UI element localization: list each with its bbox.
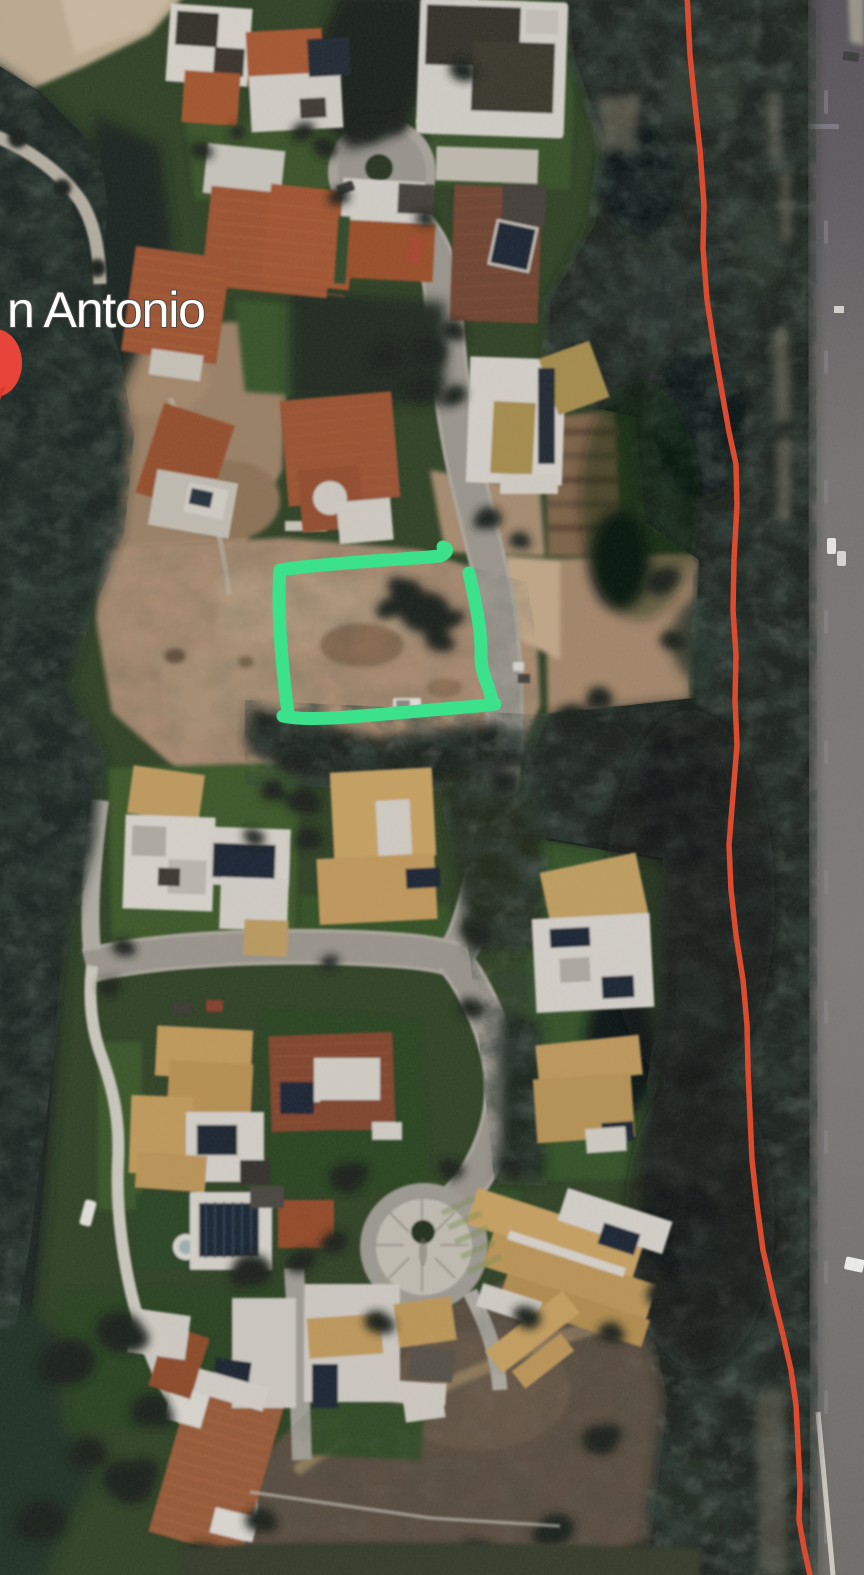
svg-text:n Antonio: n Antonio — [7, 282, 205, 338]
